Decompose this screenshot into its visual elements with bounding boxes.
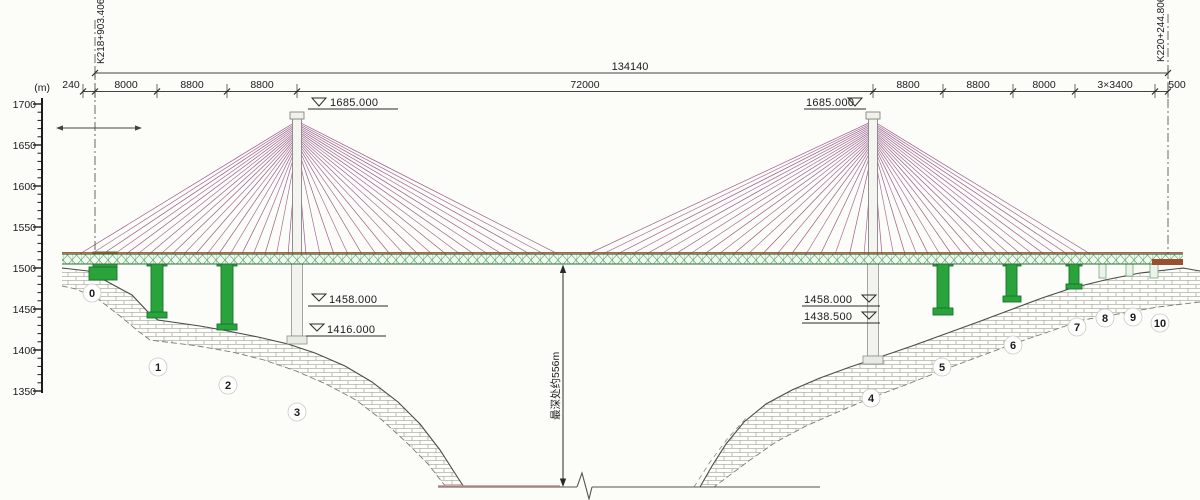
terrain-left-slope [62,268,464,487]
tower-left-cap [290,112,304,119]
dim-seg-3: 8800 [250,79,274,91]
elevation-callouts [306,98,880,336]
dim-seg-1: 8000 [114,79,138,91]
depth-dimension: 最深处约556m [549,265,566,488]
elev-right-low: 1438.500 [804,311,852,323]
station-label-right: K220+244.806 [1156,0,1167,62]
pier-label-9: 9 [1130,312,1136,324]
pier-label-1: 1 [155,362,161,374]
dim-seg-5: 8800 [896,79,920,91]
pier-8-post [1099,264,1106,278]
tower-right-footing [863,356,883,364]
dimension-labels: 134140 240 8000 8800 8800 72000 8800 880… [62,61,1186,91]
scale-1400: 1400 [13,345,37,357]
pier-label-8: 8 [1102,313,1108,325]
pier-0-block-lower [89,267,117,280]
pier-label-0: 0 [89,288,95,300]
dim-seg-2: 8800 [180,79,204,91]
break-symbol [577,473,592,499]
pier-label-2: 2 [225,380,231,392]
elevation-texts: 1685.000 1685.000 1458.000 1416.000 1458… [327,97,854,336]
depth-note: 最深处约556m [549,351,562,420]
scale-1600: 1600 [13,181,37,193]
elev-right-tower: 1685.000 [806,97,854,109]
pier-1 [147,261,167,318]
pier-label-5: 5 [939,362,945,374]
scale-1450: 1450 [13,304,37,316]
dim-seg-9: 500 [1168,79,1186,91]
tower-left-footing [287,336,307,344]
scale-1350: 1350 [13,386,37,398]
dim-overall: 134140 [612,61,649,73]
scale-1500: 1500 [13,263,37,275]
elevation-scale: (m) 1700 1650 1600 1550 1500 1450 1400 1… [13,82,50,398]
pier-9-post [1126,264,1133,276]
pier-6 [1003,261,1021,302]
valley-floor [438,473,820,499]
stay-cables [78,121,1092,255]
dim-seg-7: 8000 [1032,79,1056,91]
pier-label-10: 10 [1154,318,1166,330]
terrain-left-lower-boundary [62,286,446,487]
pier-5 [933,261,953,315]
deck-girder [62,253,1183,265]
pier-7 [1066,261,1082,289]
scale-1650: 1650 [13,140,37,152]
tower-right-cap [866,112,880,119]
elev-left-tower: 1685.000 [330,97,378,109]
pier-2 [217,261,237,330]
scale-1700: 1700 [13,99,37,111]
pier-label-6: 6 [1010,340,1016,352]
scale-1550: 1550 [13,222,37,234]
station-label-left: K218+903.406 [96,0,107,64]
pier-label-7: 7 [1074,322,1080,334]
deck-end-brown-segment [1152,259,1183,265]
elev-right-mid: 1458.000 [804,294,852,306]
pier-label-3: 3 [294,407,300,419]
dim-seg-8: 3×3400 [1097,79,1132,91]
elev-left-low: 1416.000 [327,324,375,336]
scale-unit: (m) [34,82,50,94]
drawing-canvas: 134140 240 8000 8800 8800 72000 8800 880… [0,0,1200,500]
dim-seg-6: 8800 [966,79,990,91]
elev-left-mid: 1458.000 [329,294,377,306]
pier-label-4: 4 [868,393,875,405]
direction-arrow [56,125,142,130]
dim-seg-0: 240 [62,79,80,91]
bridge-elevation-drawing: 134140 240 8000 8800 8800 72000 8800 880… [0,0,1200,500]
dim-seg-4: 72000 [570,79,599,91]
